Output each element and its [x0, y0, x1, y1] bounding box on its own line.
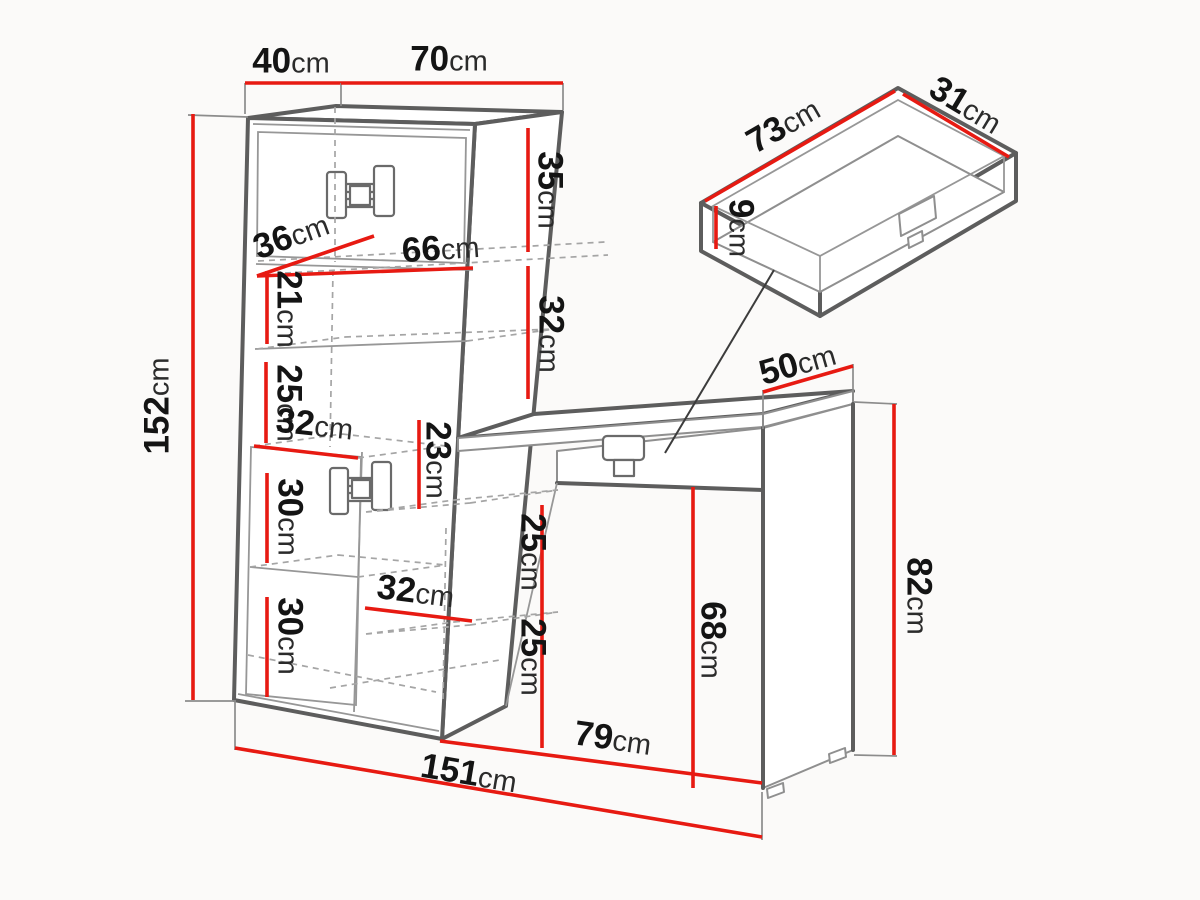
dimension-label-upper-section-35: 35cm — [530, 151, 569, 229]
dimension-label-section-23: 23cm — [418, 421, 457, 499]
dimension-section-23: 23cm — [418, 420, 457, 509]
dimension-label-section-30-b: 30cm — [270, 597, 309, 675]
dimension-label-drawer-height-9: 9cm — [721, 199, 760, 257]
dimension-cabinet-height: 152cm — [138, 114, 248, 701]
dimension-label-upper-section-32: 32cm — [531, 295, 570, 373]
dimension-label-cabinet-height: 152cm — [138, 357, 177, 454]
extension-line — [188, 115, 248, 117]
dimension-label-section-21: 21cm — [269, 270, 308, 348]
furniture-dimension-diagram: 40cm70cm152cm35cm32cm36cm66cm21cm25cm32c… — [0, 0, 1200, 900]
dimension-desk-clearance-68: 68cm — [693, 487, 732, 788]
desk-right-panel — [763, 404, 853, 788]
dimension-label-cabinet-width-top: 70cm — [410, 40, 488, 79]
dimension-label-section-25-mid-b: 25cm — [513, 618, 552, 696]
dimension-label-desk-height-82: 82cm — [899, 557, 938, 635]
extension-line — [854, 755, 897, 756]
dimension-section-25-mid-b: 25cm — [513, 618, 552, 748]
dimension-label-desk-clearance-68: 68cm — [693, 601, 732, 679]
diagram-canvas: 40cm70cm152cm35cm32cm36cm66cm21cm25cm32c… — [0, 0, 1200, 900]
dimension-label-cabinet-depth-top: 40cm — [252, 42, 330, 81]
dimension-desk-height-82: 82cm — [854, 402, 938, 756]
dimension-drawer-height-9: 9cm — [716, 199, 760, 257]
dimension-cabinet-depth-top: 40cm — [245, 42, 341, 114]
dimension-section-25-mid-a: 25cm — [513, 505, 552, 631]
dimension-label-section-30-a: 30cm — [270, 478, 309, 556]
dimension-label-section-25-mid-a: 25cm — [513, 513, 552, 591]
dimension-label-desk-width-79: 79cm — [572, 713, 654, 762]
dimension-section-21: 21cm — [267, 270, 308, 348]
dimension-cabinet-width-top: 70cm — [341, 40, 563, 110]
dimension-label-total-width-151: 151cm — [418, 746, 520, 800]
dimension-section-30-a: 30cm — [267, 473, 309, 563]
extension-line — [854, 402, 897, 404]
